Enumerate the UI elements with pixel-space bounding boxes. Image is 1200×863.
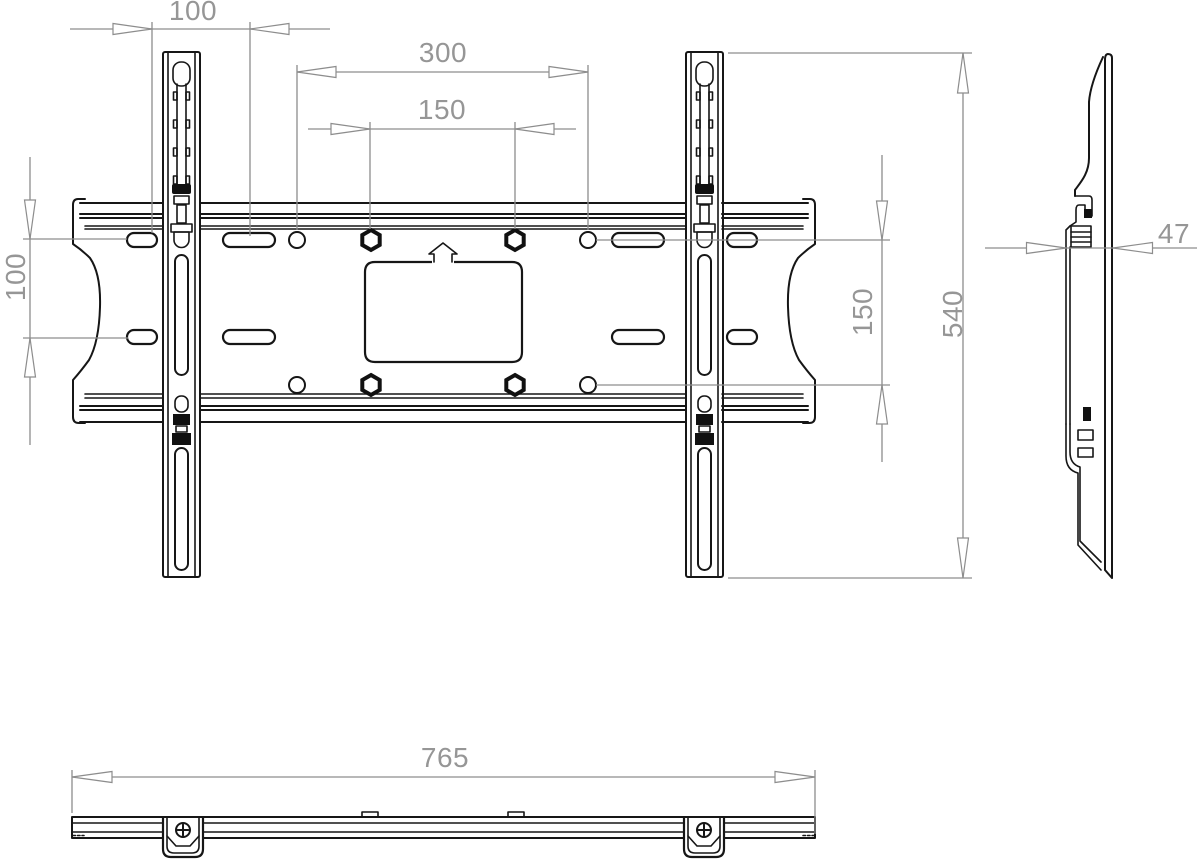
rail-slot-channel: [700, 84, 709, 184]
bottom-tab: [362, 812, 378, 817]
rail-top-bolt: [694, 184, 715, 248]
rail-low-slot-head: [175, 396, 188, 412]
plate-left-end: [73, 199, 100, 423]
dim-hole-height-150: 150: [596, 155, 890, 462]
round-hole: [580, 232, 596, 248]
slot: [727, 330, 757, 344]
side-plate-face: [1066, 226, 1070, 424]
technical-drawing: 100 300 150 100 150: [0, 0, 1200, 863]
right-rail: [686, 52, 723, 577]
hex-nuts: [362, 230, 523, 395]
hex-nut: [362, 375, 379, 395]
center-opening: [365, 243, 522, 362]
bolt-gap: [699, 426, 710, 432]
side-tab: [1078, 448, 1093, 457]
round-hole: [289, 377, 305, 393]
dim-hole-width-150: 150: [308, 94, 576, 229]
left-rail: [163, 52, 200, 577]
side-plate-upper-profile: [1075, 57, 1103, 196]
bolt-head: [172, 184, 191, 194]
bolt-block: [696, 414, 713, 425]
rail-low-bolt: [695, 414, 714, 445]
side-view: [1066, 54, 1112, 578]
rail-top-bolt: [171, 184, 192, 248]
side-rail-profile: [1105, 54, 1112, 578]
plate-top-band: [80, 203, 808, 218]
bottom-tab: [508, 812, 524, 817]
hex-nut: [362, 230, 379, 250]
rail-slot-channel: [177, 84, 186, 184]
dimension-label-150-top: 150: [418, 94, 466, 125]
bolt-flange: [694, 224, 715, 232]
bolt-head: [695, 184, 714, 194]
rail-long-slot: [698, 448, 711, 570]
dimension-label-300: 300: [419, 37, 467, 68]
bottom-view: [72, 812, 815, 857]
up-arrow-icon: [429, 243, 457, 262]
hook-latch: [1084, 209, 1092, 218]
bolt-block: [173, 414, 190, 425]
side-low-bolt: [1083, 407, 1091, 421]
rail-slot-notches: [174, 92, 190, 184]
round-hole: [580, 377, 596, 393]
rail-long-slot: [175, 448, 188, 570]
bolt-block: [172, 433, 191, 445]
side-tab: [1078, 430, 1093, 440]
side-spacer-block: [1071, 226, 1091, 247]
rail-slot-head: [173, 62, 190, 86]
hex-nut: [506, 375, 523, 395]
dimension-label-540: 540: [937, 290, 968, 338]
rail-inner-edges: [168, 52, 195, 577]
slot: [223, 330, 275, 344]
drawing-canvas: 100 300 150 100 150: [0, 0, 1200, 863]
round-hole: [289, 232, 305, 248]
round-holes: [289, 232, 596, 393]
rail-inner-edges: [691, 52, 718, 577]
dimension-label-100-left: 100: [0, 253, 31, 301]
rail-low-bolt: [172, 414, 191, 445]
dimension-label-150-right: 150: [847, 288, 878, 336]
bolt-washer: [174, 196, 189, 204]
plate-right-end: [788, 199, 815, 423]
dimension-label-47: 47: [1158, 218, 1190, 249]
bottom-clamp-left: [163, 817, 203, 857]
mounting-holes: [127, 230, 757, 395]
front-view: [73, 52, 815, 577]
bolt-foot: [174, 232, 189, 248]
plate-bottom-band-thin: [85, 394, 803, 398]
side-plate-foot: [1066, 424, 1101, 570]
side-plate-hook: [1070, 196, 1092, 226]
bolt-block: [695, 433, 714, 445]
slot: [612, 330, 664, 344]
slot-holes: [127, 233, 757, 344]
rail-slot-head: [696, 62, 713, 86]
hex-nut: [506, 230, 523, 250]
rail-mid-slot: [175, 255, 188, 375]
dim-row-spacing-100: 100: [0, 157, 128, 445]
bolt-stem: [700, 205, 709, 223]
bottom-clamp-right: [684, 817, 724, 857]
bolt-washer: [697, 196, 712, 204]
dimension-label-100-top: 100: [169, 0, 217, 26]
slot: [223, 233, 275, 247]
bolt-gap: [176, 426, 187, 432]
rail-slot-notches: [697, 92, 713, 184]
dimension-label-765: 765: [421, 742, 469, 773]
bolt-flange: [171, 224, 192, 232]
opening-outline: [365, 262, 522, 362]
clamp-screw-cross: [178, 825, 189, 836]
bolt-stem: [177, 205, 186, 223]
rail-low-slot-head: [698, 396, 711, 412]
slot: [127, 233, 157, 247]
slot: [127, 330, 157, 344]
dim-overall-width-765: 765: [72, 742, 815, 834]
clamp-screw-cross: [699, 825, 710, 836]
rail-mid-slot: [698, 255, 711, 375]
